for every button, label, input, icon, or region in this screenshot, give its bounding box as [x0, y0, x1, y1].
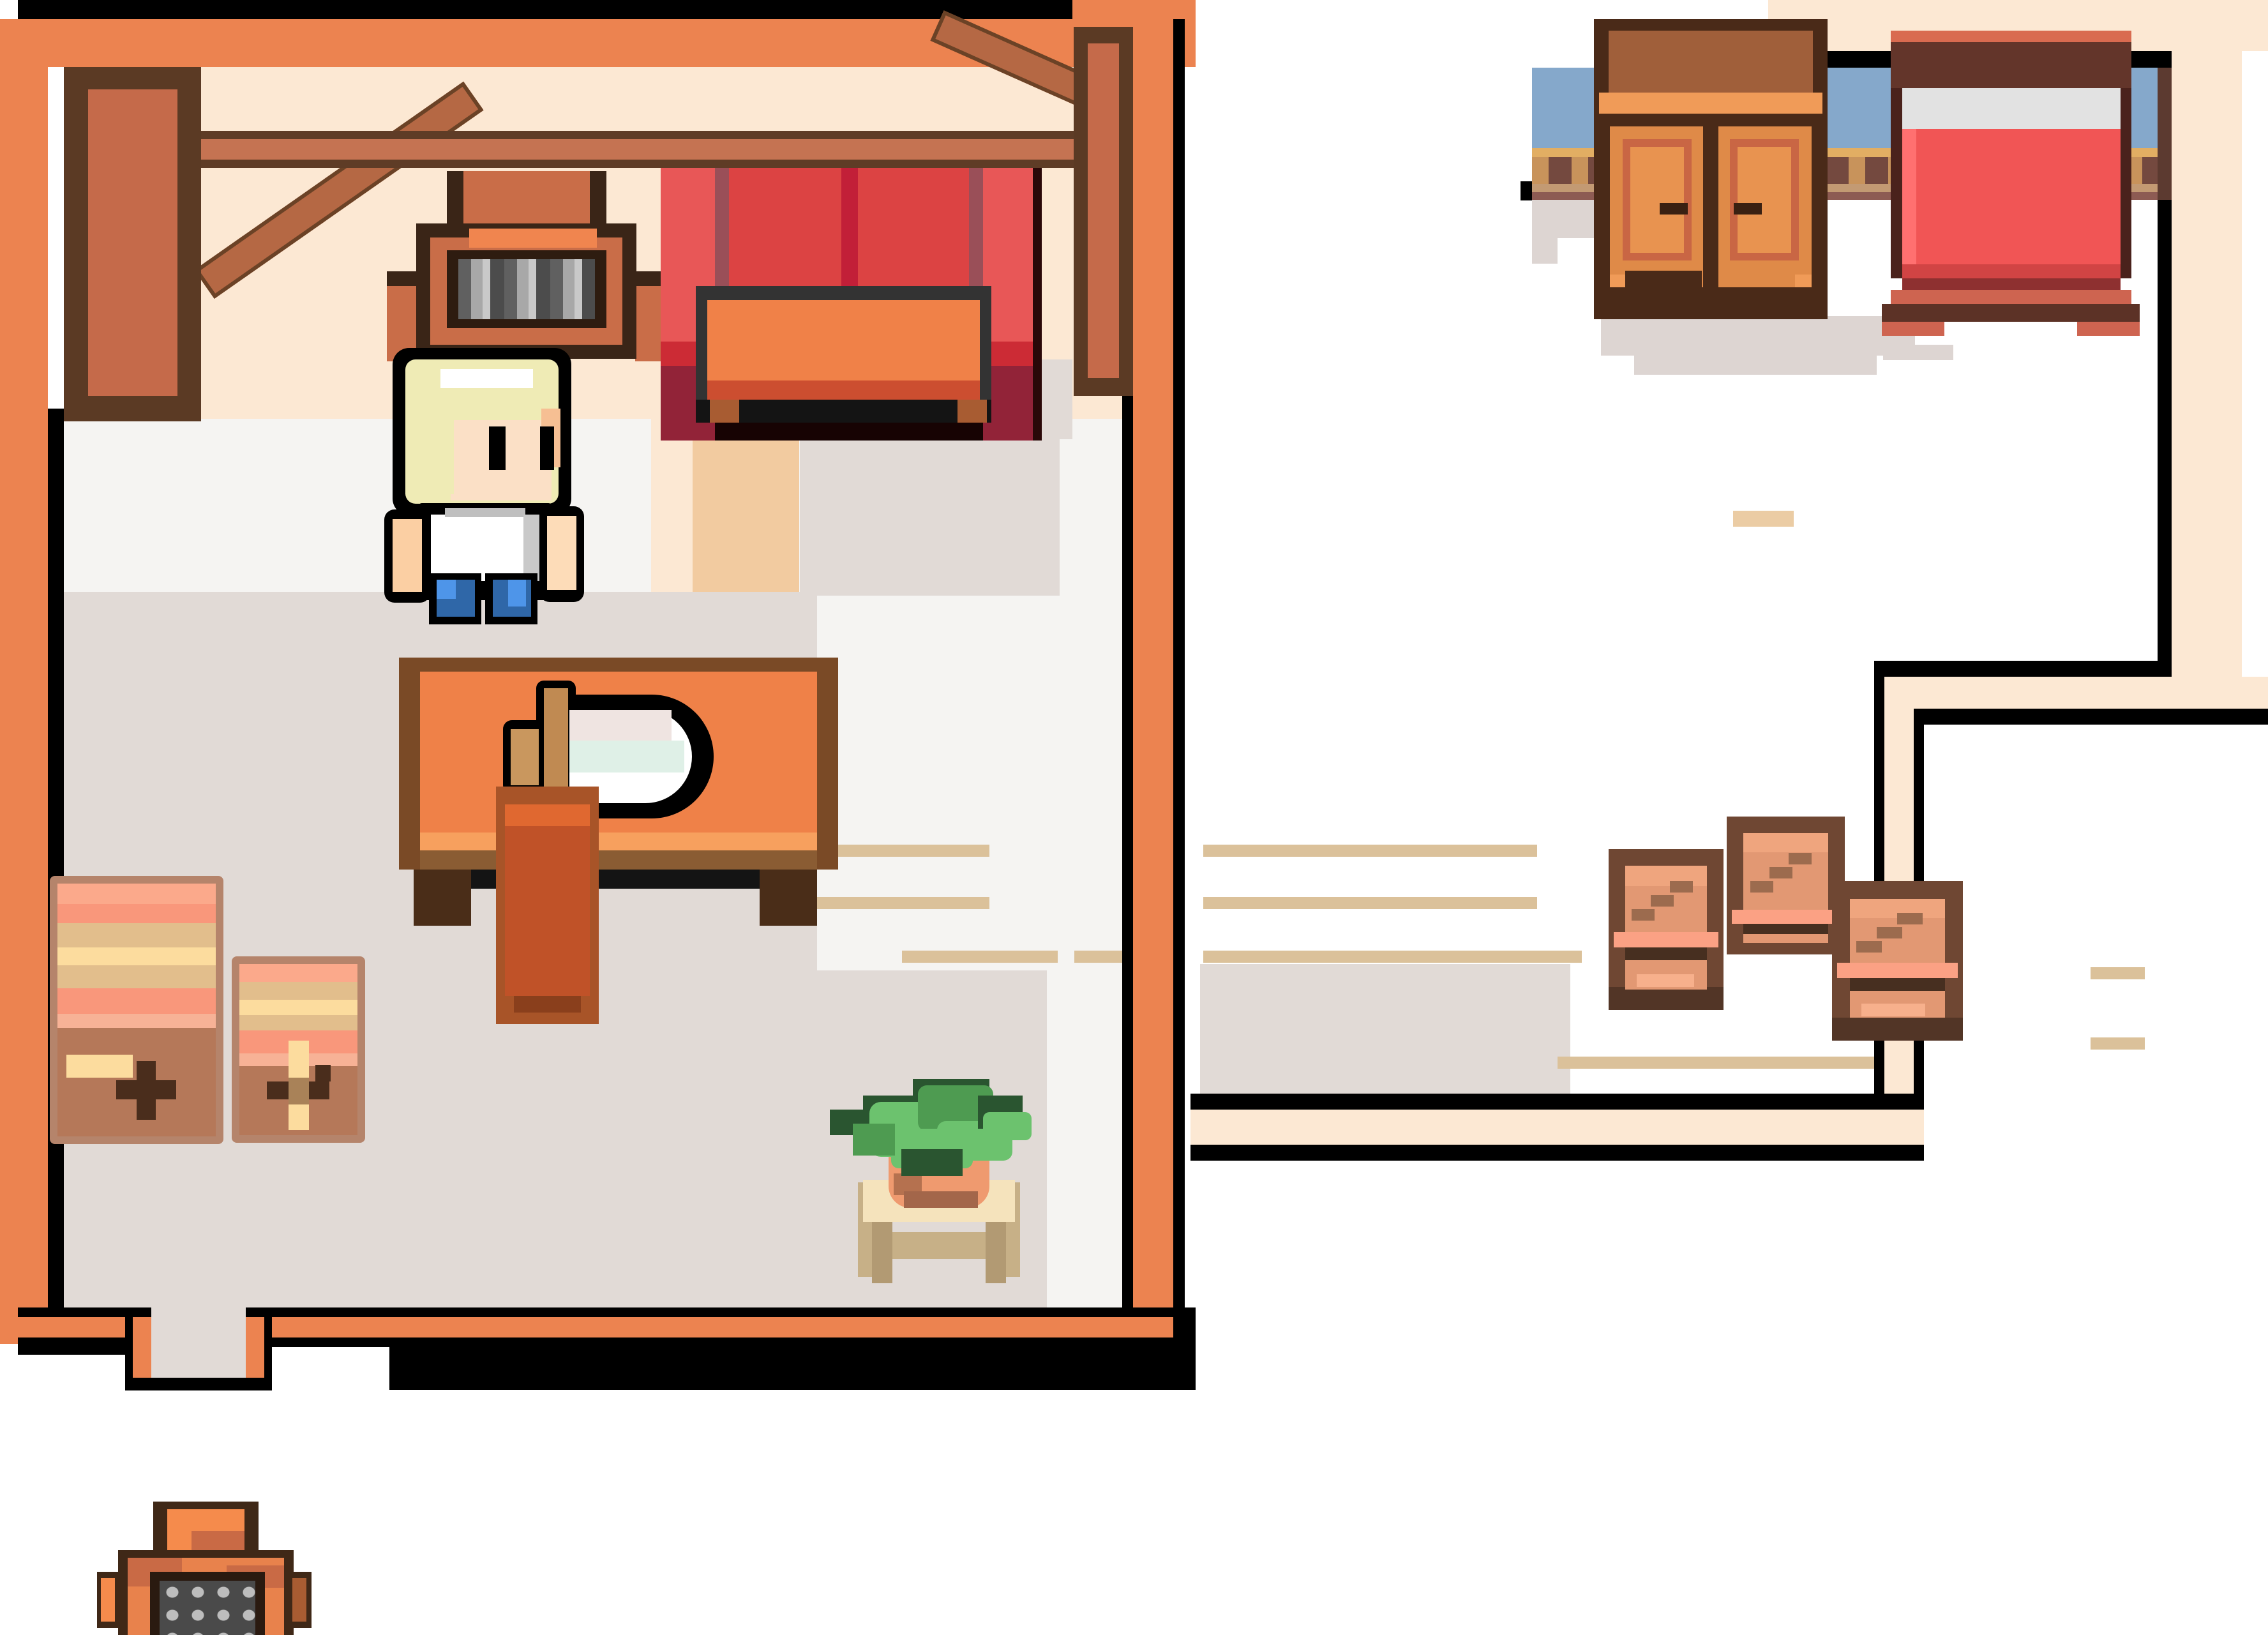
wardrobe-handle-left[interactable] [1660, 203, 1688, 215]
desk-apron[interactable] [420, 850, 817, 870]
orange-table-leg-right[interactable] [958, 400, 987, 423]
player-character-arm-left[interactable] [393, 519, 422, 592]
crate-left-step-1[interactable] [1632, 909, 1655, 921]
sword-item-blade-tint-mid[interactable] [569, 741, 684, 772]
furnace-outside-grate[interactable] [160, 1581, 255, 1635]
sack-small-mark-c[interactable] [289, 1078, 309, 1104]
crate-right-dark-band[interactable] [1850, 978, 1945, 991]
player-character-eye-right[interactable] [540, 426, 554, 470]
post-left-fill [88, 89, 177, 396]
potted-plant-leaf-d4[interactable] [901, 1149, 963, 1176]
potted-plant-stand-cross[interactable] [892, 1232, 986, 1259]
crate-back-step-3[interactable] [1789, 853, 1812, 864]
desk-edge-light[interactable] [420, 833, 817, 850]
wardrobe-band-line[interactable] [1599, 114, 1822, 126]
potted-plant-leaf-g4[interactable] [983, 1112, 1032, 1140]
bed-frame-right[interactable] [2121, 88, 2131, 278]
corridor-floor-board-2 [1203, 897, 1537, 909]
crate-right-lower-light[interactable] [1861, 1004, 1925, 1016]
player-character-jeans-patch-left[interactable] [437, 580, 456, 599]
right-wall-step-h-cream [1883, 677, 2268, 709]
left-room-walls-top-black [18, 0, 1072, 19]
player-character-eye-left[interactable] [489, 426, 506, 470]
bed-top-strip[interactable] [1891, 31, 2131, 42]
wardrobe-under-bar[interactable] [1625, 271, 1702, 287]
bed-pillow[interactable] [1902, 88, 2121, 129]
left-room-floor-board-1 [817, 845, 989, 857]
crate-back-lower-panel[interactable] [1743, 934, 1828, 943]
crate-right-step-3[interactable] [1897, 913, 1923, 924]
post-right-fill [1088, 43, 1119, 378]
sword-item-grip[interactable] [511, 729, 539, 785]
crate-back-panel-light[interactable] [1743, 833, 1828, 852]
crate-left-step-2[interactable] [1651, 895, 1674, 907]
bed-foot-left[interactable] [1882, 322, 1944, 336]
crate-back-dark-band[interactable] [1743, 924, 1828, 934]
crate-right-salmon[interactable] [1837, 963, 1958, 978]
player-character-shirt-shade[interactable] [523, 515, 539, 581]
furnace-outside-ear-right[interactable] [292, 1578, 306, 1622]
crate-back-step-1[interactable] [1750, 881, 1773, 893]
orange-table-top[interactable] [707, 300, 980, 380]
crate-left-salmon[interactable] [1614, 932, 1718, 947]
wardrobe-panel-left-fill[interactable] [1630, 147, 1684, 253]
player-character-hair-side[interactable] [405, 414, 454, 494]
left-room-walls-bottom-right-black-2 [389, 1337, 1196, 1390]
left-room-floor-board-2 [817, 897, 989, 909]
crate-left-dark-band[interactable] [1625, 947, 1707, 960]
desk-leg-right[interactable] [760, 870, 817, 926]
left-room-floor-tan-rug [693, 419, 799, 598]
wardrobe-lid[interactable] [1609, 31, 1813, 93]
wardrobe-sill-left[interactable] [1610, 275, 1626, 289]
left-room-walls-left-orange [0, 67, 48, 1344]
crate-left-lower-light[interactable] [1637, 974, 1694, 987]
furnace-outside-ear-left[interactable] [101, 1578, 115, 1622]
bed-foot-bar[interactable] [1882, 304, 2140, 322]
orange-table-edge[interactable] [707, 380, 980, 400]
sack-small-mark-n[interactable] [315, 1065, 331, 1081]
left-room-floor-gray-b2 [1042, 359, 1072, 439]
potted-plant-stand-leg-right[interactable] [986, 1221, 1006, 1283]
game-viewport [0, 0, 2268, 1635]
left-room-floor-gray-b [800, 436, 1060, 596]
wardrobe-panel-right-fill[interactable] [1738, 147, 1791, 253]
corridor-floor-board-stub-2 [2091, 1037, 2145, 1050]
wardrobe-sill-right[interactable] [1795, 275, 1812, 289]
corridor-floor-board-1 [1203, 845, 1537, 857]
right-room-bottom-wall-black-bottom [1190, 1145, 1924, 1161]
crate-right-step-1[interactable] [1856, 941, 1882, 953]
right-room-walls-right-wall-cream [2172, 51, 2242, 677]
player-character-arm-right[interactable] [547, 516, 576, 590]
potted-plant-stand-leg-left[interactable] [872, 1221, 892, 1283]
crate-left-panel-light[interactable] [1625, 866, 1707, 886]
bed-headboard[interactable] [1891, 42, 2131, 88]
wardrobe-shadow-2[interactable] [1634, 356, 1877, 375]
crate-back-step-2[interactable] [1769, 867, 1792, 878]
sack-large-patch[interactable] [66, 1055, 133, 1078]
wardrobe-band[interactable] [1599, 93, 1822, 114]
left-room-walls-left-inner-black [48, 409, 64, 1307]
orange-table-shadow[interactable] [696, 400, 991, 423]
corridor-floor-board-stub-1 [2091, 967, 2145, 979]
right-room-walls-rail-shadow-2 [1532, 238, 1558, 264]
bed-blanket[interactable] [1902, 129, 2121, 264]
player-character-hair-highlight[interactable] [440, 369, 533, 388]
corridor-floor-gray-patch [1200, 964, 1570, 1104]
left-room-walls-top-right-orange [1072, 0, 1196, 19]
doorway-jamb-right-orange[interactable] [246, 1317, 264, 1378]
crate-right-step-2[interactable] [1877, 927, 1902, 938]
bed-frame-left[interactable] [1891, 88, 1902, 278]
left-room-walls-right-orange [1133, 19, 1173, 1347]
doorway-lip[interactable] [125, 1378, 272, 1390]
couch-right-outline[interactable] [1033, 168, 1042, 441]
bed-foot-right[interactable] [2077, 322, 2140, 336]
right-wall-step-h-black-top [1874, 661, 2172, 677]
player-character-collar[interactable] [445, 508, 525, 517]
left-room-walls-right-outer-black [1173, 19, 1185, 1347]
doorway-floor[interactable] [151, 1307, 246, 1379]
left-room-walls-bottom-right-orange [272, 1317, 1173, 1337]
ceiling-beam-rust [201, 139, 1074, 160]
left-room-floor-cream-patch [651, 419, 693, 598]
crate-right-frame-dark[interactable] [1832, 1018, 1963, 1041]
bed-strip-1[interactable] [1902, 264, 2121, 278]
wardrobe-handle-right[interactable] [1734, 203, 1762, 215]
crate-left-frame-dark[interactable] [1609, 987, 1724, 1010]
desk-chair-body[interactable] [505, 826, 590, 996]
sword-item-blade-tint-top[interactable] [569, 710, 672, 741]
sack-large-stripes[interactable] [57, 884, 216, 1028]
wardrobe-divider[interactable] [1703, 126, 1718, 296]
potted-plant-pot-shade-2[interactable] [904, 1191, 978, 1208]
wardrobe-bottom-bar[interactable] [1609, 287, 1813, 310]
bed-blanket-edge[interactable] [1902, 129, 1916, 264]
desk-leg-left[interactable] [414, 870, 471, 926]
crate-back-salmon[interactable] [1732, 910, 1840, 924]
desk-chair-top-strip[interactable] [505, 804, 590, 826]
corridor-floor-tan-dash [1733, 511, 1794, 527]
right-room-walls-rail-end-nub [1521, 181, 1532, 200]
left-room-floor-board-3 [902, 951, 1058, 963]
corridor-floor-board-3 [1203, 951, 1582, 963]
player-character-jeans-patch-right[interactable] [508, 580, 526, 607]
left-room-floor-board-4 [1074, 951, 1122, 963]
left-room-walls-bottom-left-orange [0, 1317, 133, 1337]
bed-shadow[interactable] [1883, 345, 1953, 360]
wardrobe-shadow-1[interactable] [1601, 316, 1915, 356]
fireplace-stove-ear-left-cap[interactable] [387, 271, 417, 287]
corridor-floor-board-long [1558, 1057, 1874, 1069]
right-room-bottom-wall-black-top [1190, 1094, 1924, 1110]
doorway-jamb-left-orange[interactable] [133, 1317, 151, 1378]
desk-chair-notch[interactable] [514, 996, 581, 1013]
crate-left-step-3[interactable] [1670, 881, 1693, 893]
fireplace-stove-highlight[interactable] [469, 229, 597, 248]
right-room-walls-right-wall-black [2158, 200, 2172, 677]
right-room-bottom-wall-cream [1190, 1110, 1924, 1145]
bed-foot-salmon[interactable] [1891, 290, 2131, 304]
orange-table-leg-left[interactable] [710, 400, 739, 423]
fireplace-stove-grate-bars[interactable] [458, 259, 595, 319]
potted-plant-leaf-m2[interactable] [853, 1124, 895, 1156]
right-wall-step-h-black-bottom [1914, 709, 2268, 725]
sack-large-mark-v[interactable] [137, 1061, 156, 1120]
bed-strip-2[interactable] [1902, 278, 2121, 290]
